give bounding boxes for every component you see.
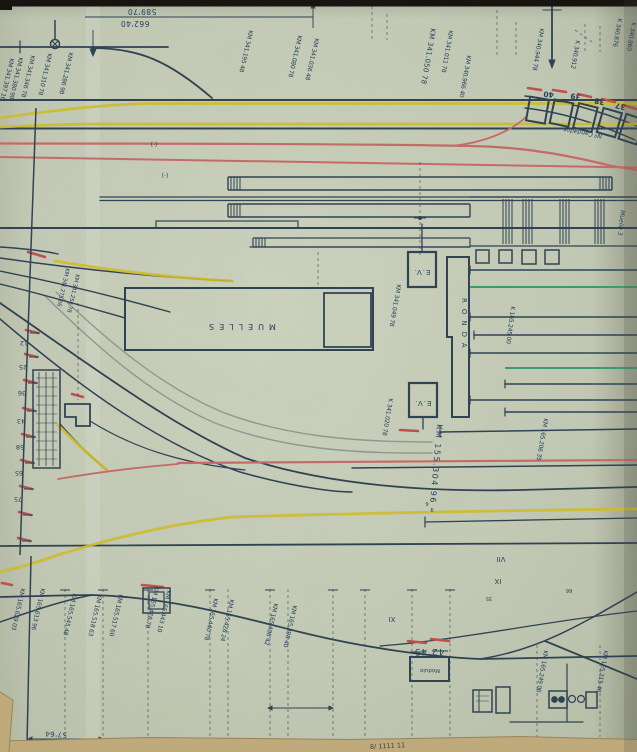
scanned-railway-yard-plan: 589'70 662'40 KM 341.397 16 KM 341.380 9…: [0, 0, 637, 752]
yard-plan-drawing: 589'70 662'40 KM 341.397 16 KM 341.380 9…: [0, 0, 637, 752]
paper-grain-overlay: [0, 0, 637, 752]
